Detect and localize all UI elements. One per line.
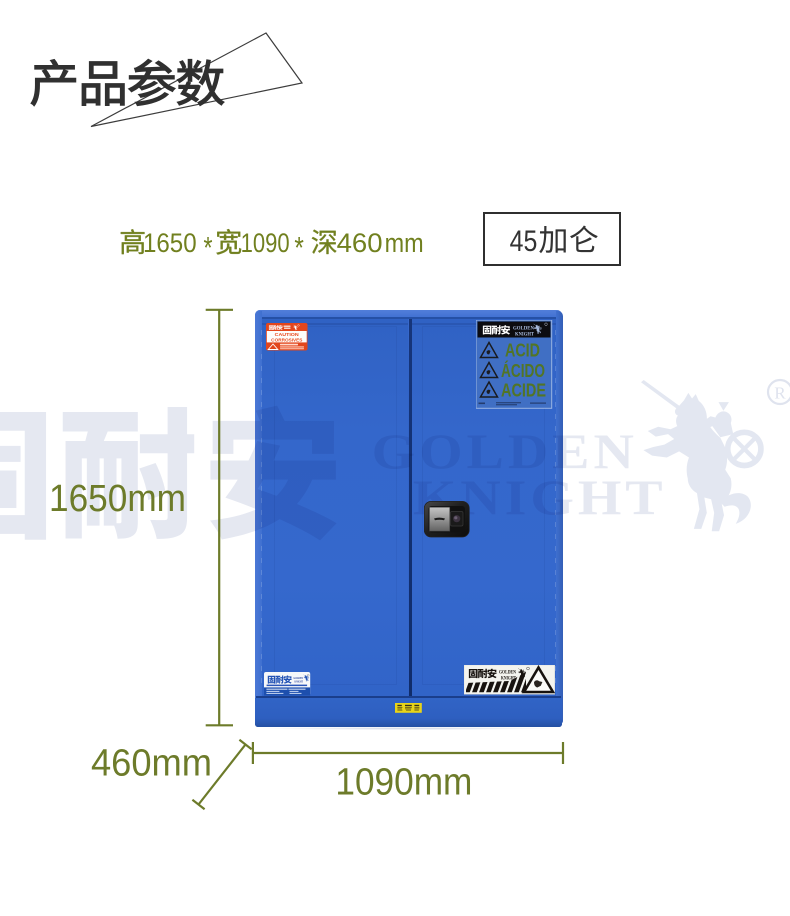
svg-text:1650mm: 1650mm bbox=[49, 478, 186, 520]
svg-text:460mm: 460mm bbox=[91, 742, 212, 784]
svg-text:1090mm: 1090mm bbox=[335, 761, 472, 803]
